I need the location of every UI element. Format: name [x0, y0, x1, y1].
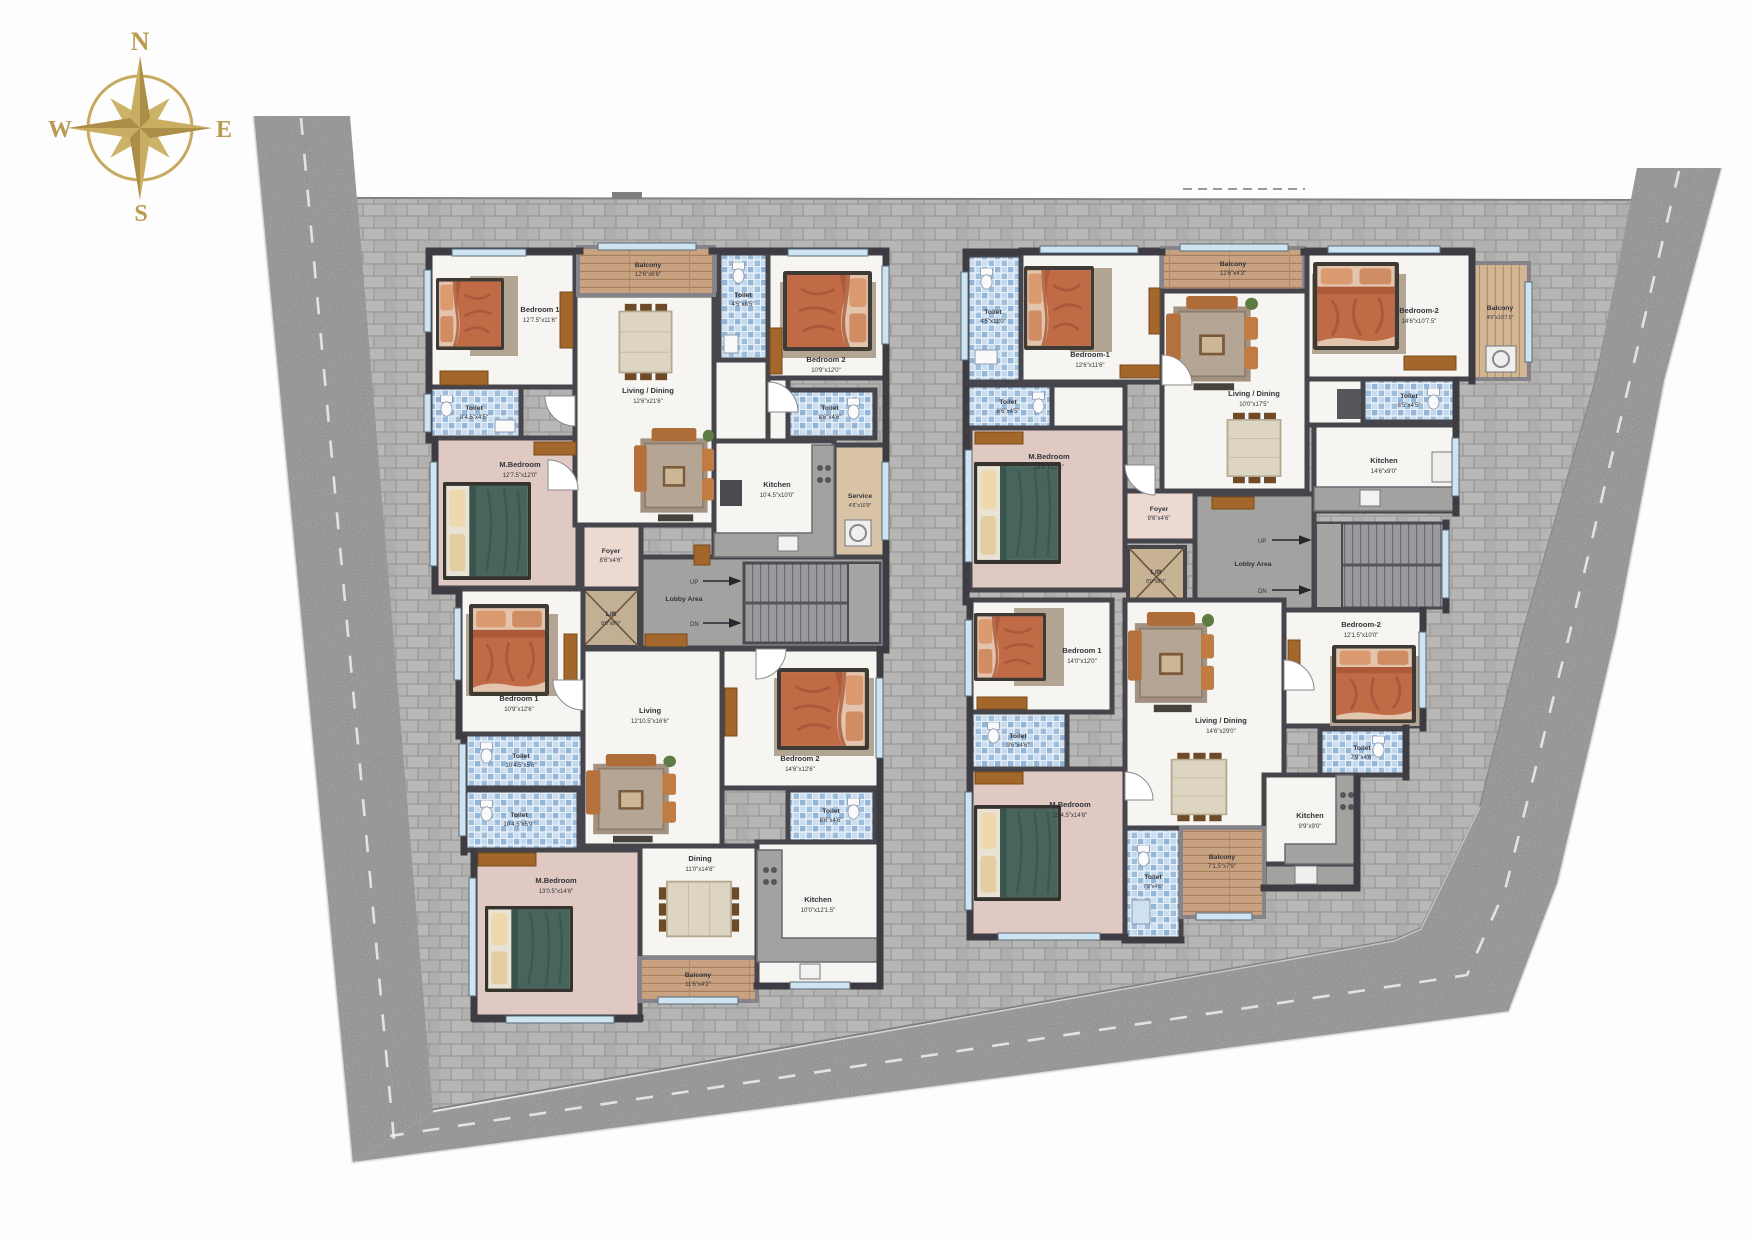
svg-text:4'6"x10'7.5": 4'6"x10'7.5"	[1486, 315, 1513, 321]
svg-text:Toilet: Toilet	[512, 753, 530, 760]
svg-text:Kitchen: Kitchen	[1296, 811, 1324, 820]
svg-text:4'6"x10'9": 4'6"x10'9"	[849, 503, 872, 509]
svg-text:7'1.5"x7'9": 7'1.5"x7'9"	[1208, 864, 1236, 870]
svg-text:7'9"x4'6": 7'9"x4'6"	[1351, 755, 1374, 761]
svg-text:Lobby Area: Lobby Area	[1234, 561, 1271, 568]
svg-text:Bedroom 1: Bedroom 1	[520, 305, 559, 314]
svg-text:11'0"x14'6": 11'0"x14'6"	[685, 867, 714, 873]
svg-text:DN: DN	[1258, 589, 1267, 595]
svg-text:Service: Service	[848, 493, 872, 500]
svg-text:8'0"x8'0": 8'0"x8'0"	[601, 621, 621, 627]
svg-text:Balcony: Balcony	[1209, 854, 1236, 861]
svg-text:E: E	[216, 117, 232, 143]
svg-text:10'9"x12'0": 10'9"x12'0"	[811, 368, 841, 374]
svg-text:Living / Dining: Living / Dining	[1195, 716, 1247, 725]
svg-text:UP: UP	[690, 580, 698, 586]
svg-text:13'0.5"x14'6": 13'0.5"x14'6"	[539, 889, 574, 895]
svg-text:Lift: Lift	[606, 611, 617, 618]
svg-text:12'6"x4'3": 12'6"x4'3"	[1220, 271, 1246, 277]
svg-text:N: N	[131, 27, 150, 56]
svg-text:Bedroom-2: Bedroom-2	[1341, 620, 1381, 629]
svg-text:12'7.5"x11'6": 12'7.5"x11'6"	[523, 318, 557, 324]
svg-text:4'5"x8'5": 4'5"x8'5"	[732, 302, 755, 308]
svg-text:Balcony: Balcony	[1487, 305, 1514, 312]
svg-text:Toilet: Toilet	[510, 812, 528, 819]
svg-text:10'4.5"x5'6": 10'4.5"x5'6"	[505, 763, 536, 769]
svg-text:Toilet: Toilet	[1400, 393, 1418, 400]
svg-text:Kitchen: Kitchen	[763, 480, 791, 489]
svg-text:Lobby Area: Lobby Area	[665, 596, 702, 603]
svg-text:Living: Living	[639, 706, 662, 715]
svg-text:UP: UP	[1258, 539, 1266, 545]
svg-text:Foyer: Foyer	[602, 548, 621, 555]
svg-text:Toilet: Toilet	[822, 808, 840, 815]
svg-text:Balcony: Balcony	[1220, 261, 1247, 268]
svg-text:12'10.5"x16'6": 12'10.5"x16'6"	[631, 719, 669, 725]
svg-text:14'6"x10'7.5": 14'6"x10'7.5"	[1402, 319, 1437, 325]
svg-text:Toilet: Toilet	[1009, 733, 1027, 740]
svg-text:14'6"x9'0": 14'6"x9'0"	[1371, 469, 1397, 475]
svg-text:M.Bedroom: M.Bedroom	[499, 460, 541, 469]
svg-text:14'6"x12'6": 14'6"x12'6"	[1034, 465, 1064, 471]
svg-text:14'6"x12'6": 14'6"x12'6"	[785, 767, 815, 773]
svg-text:Living / Dining: Living / Dining	[1228, 389, 1280, 398]
svg-text:S: S	[134, 201, 147, 227]
svg-text:10'4.5"x10'0": 10'4.5"x10'0"	[760, 493, 795, 499]
svg-text:12'6"x21'6": 12'6"x21'6"	[633, 399, 663, 405]
svg-text:10'4.5"x5'9": 10'4.5"x5'9"	[503, 822, 534, 828]
svg-text:10'0"x17'5": 10'0"x17'5"	[1239, 402, 1269, 408]
svg-text:12'1.5"x10'0": 12'1.5"x10'0"	[1344, 633, 1379, 639]
svg-text:8'0"x8'0": 8'0"x8'0"	[1146, 579, 1166, 585]
svg-text:8'6"x4'6": 8'6"x4'6"	[600, 558, 623, 564]
svg-text:Toilet: Toilet	[465, 405, 483, 412]
svg-text:Bedroom 1: Bedroom 1	[499, 694, 538, 703]
svg-text:8'6"x4'6": 8'6"x4'6"	[820, 818, 843, 824]
svg-text:Toilet: Toilet	[821, 405, 839, 412]
svg-text:Dining: Dining	[688, 854, 712, 863]
svg-text:M.Bedroom: M.Bedroom	[1028, 452, 1070, 461]
svg-text:M.Bedroom: M.Bedroom	[535, 876, 577, 885]
svg-text:9'9"x9'0": 9'9"x9'0"	[1299, 824, 1322, 830]
svg-text:Toilet: Toilet	[734, 292, 752, 299]
svg-text:Toilet: Toilet	[999, 399, 1017, 406]
svg-text:11'6"x4'2": 11'6"x4'2"	[685, 982, 711, 988]
svg-text:12'7.5"x12'0": 12'7.5"x12'0"	[503, 473, 538, 479]
svg-text:Bedroom 1: Bedroom 1	[1062, 646, 1101, 655]
svg-text:14'0"x12'0": 14'0"x12'0"	[1067, 659, 1097, 665]
svg-text:12'6"x11'6": 12'6"x11'6"	[1075, 363, 1104, 369]
svg-text:14'6"x29'0": 14'6"x29'0"	[1206, 729, 1236, 735]
svg-text:8'5"x4'5": 8'5"x4'5"	[1398, 403, 1421, 409]
svg-text:Toilet: Toilet	[1353, 745, 1371, 752]
svg-text:Toilet: Toilet	[1144, 874, 1162, 881]
svg-text:7'9"x4'6": 7'9"x4'6"	[1143, 884, 1163, 890]
svg-text:Living / Dining: Living / Dining	[622, 386, 674, 395]
svg-text:M.Bedroom: M.Bedroom	[1049, 800, 1091, 809]
svg-text:4'5"x11'0": 4'5"x11'0"	[980, 319, 1006, 325]
svg-text:12'6"x6'6": 12'6"x6'6"	[635, 272, 661, 278]
svg-text:Lift: Lift	[1151, 569, 1162, 576]
svg-text:10'9"x12'6": 10'9"x12'6"	[504, 707, 534, 713]
svg-text:8'6"x4'6": 8'6"x4'6"	[819, 415, 842, 421]
svg-text:8'6"x4'5": 8'6"x4'5"	[997, 409, 1020, 415]
svg-text:Bedroom-1: Bedroom-1	[1070, 350, 1110, 359]
svg-text:Bedroom 2: Bedroom 2	[780, 754, 819, 763]
svg-text:Balcony: Balcony	[635, 262, 662, 269]
svg-text:W: W	[48, 117, 72, 143]
svg-text:13'4.5"x14'6": 13'4.5"x14'6"	[1053, 813, 1088, 819]
svg-text:9'4.5"x4'5": 9'4.5"x4'5"	[460, 415, 488, 421]
svg-text:Toilet: Toilet	[984, 309, 1002, 316]
svg-text:Kitchen: Kitchen	[804, 895, 832, 904]
svg-text:Kitchen: Kitchen	[1370, 456, 1398, 465]
svg-text:Foyer: Foyer	[1150, 506, 1169, 513]
svg-text:Bedroom 2: Bedroom 2	[806, 355, 845, 364]
svg-text:DN: DN	[690, 622, 699, 628]
svg-text:9'6"x4'6": 9'6"x4'6"	[1148, 516, 1171, 522]
svg-text:Balcony: Balcony	[685, 972, 712, 979]
svg-text:Bedroom-2: Bedroom-2	[1399, 306, 1439, 315]
svg-text:9'6"x4'6": 9'6"x4'6"	[1007, 743, 1030, 749]
svg-text:10'0"x12'1.5": 10'0"x12'1.5"	[801, 908, 836, 914]
